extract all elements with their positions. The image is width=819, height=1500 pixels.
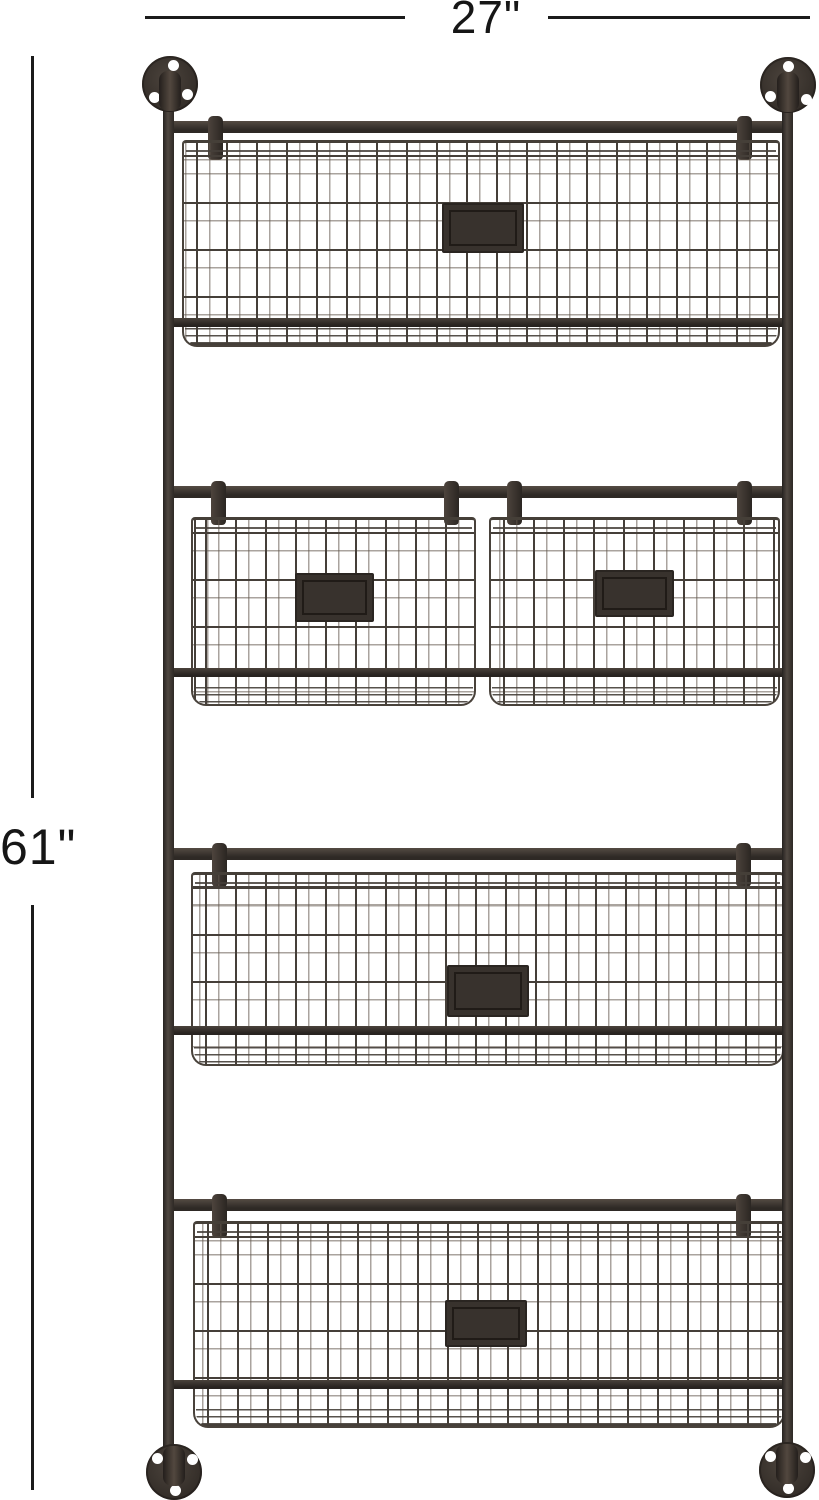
wall-mount-flange-top-right — [760, 57, 816, 113]
screw-hole — [765, 91, 776, 102]
width-dimension-line-left — [145, 16, 405, 19]
support-bar-row-2 — [166, 668, 790, 677]
pipe-fitting — [777, 72, 799, 112]
wall-mount-flange-top-left — [142, 56, 198, 112]
pipe-fitting — [776, 1444, 798, 1484]
label-plate-row-1 — [442, 203, 524, 253]
label-plate-row-4 — [445, 1300, 527, 1347]
label-plate-row-3 — [447, 965, 529, 1017]
width-dimension-line-right — [548, 16, 810, 19]
screw-hole — [783, 61, 794, 72]
screw-hole — [783, 1483, 794, 1494]
support-bar-row-4 — [166, 1380, 790, 1389]
pipe-fitting — [159, 71, 181, 111]
height-dimension-line-bottom — [31, 905, 34, 1490]
screw-hole — [801, 94, 812, 105]
wall-mount-flange-bottom-right — [759, 1442, 815, 1498]
frame-rail-right — [782, 84, 793, 1476]
support-bar-row-3 — [166, 1026, 790, 1035]
width-dimension-label: 27" — [416, 0, 556, 40]
screw-hole — [182, 89, 193, 100]
label-plate-row-2-left — [295, 573, 374, 622]
screw-hole — [168, 60, 179, 71]
screw-hole — [170, 1485, 181, 1496]
hanging-bar-row-2 — [166, 486, 790, 498]
height-dimension-line-top — [31, 56, 34, 798]
frame-rail-left — [163, 84, 174, 1476]
screw-hole — [152, 1453, 163, 1464]
screw-hole — [800, 1452, 811, 1463]
hanging-bar-row-4 — [166, 1199, 790, 1211]
screw-hole — [187, 1454, 198, 1465]
label-plate-row-2-right — [595, 570, 674, 617]
pipe-fitting — [163, 1446, 185, 1486]
hanging-bar-row-3 — [166, 848, 790, 860]
support-bar-row-1 — [166, 318, 790, 327]
screw-hole — [765, 1451, 776, 1462]
hanging-bar-row-1 — [166, 121, 790, 133]
product-dimension-image: 27" 61" — [0, 0, 819, 1500]
height-dimension-label: 61" — [0, 822, 80, 872]
wall-mount-flange-bottom-left — [146, 1444, 202, 1500]
